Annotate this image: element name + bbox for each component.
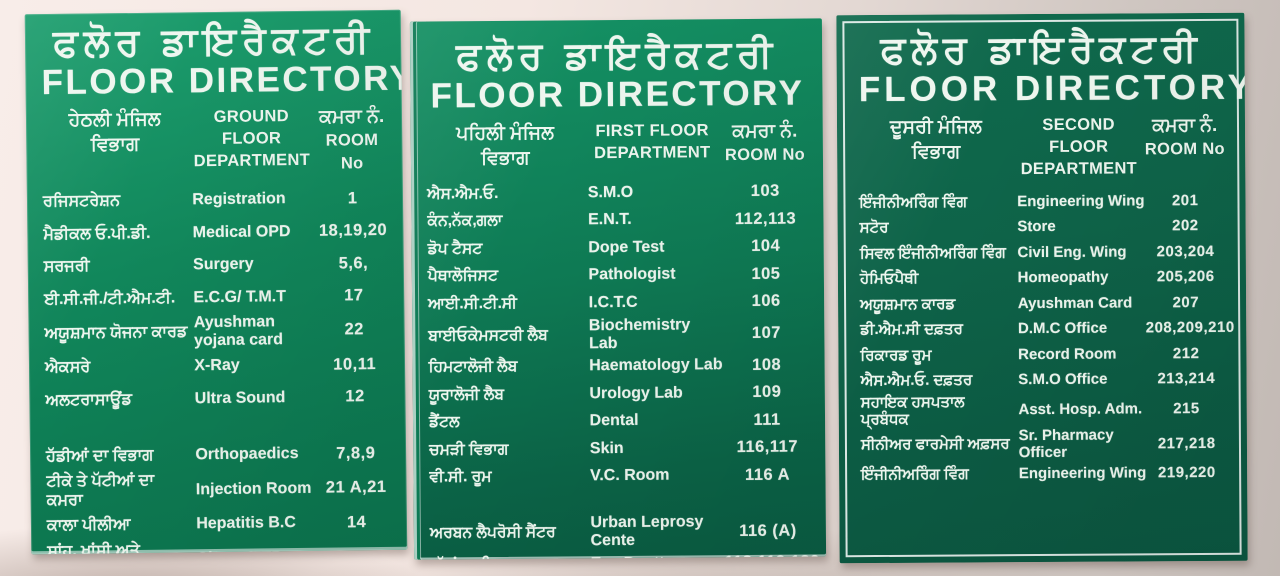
directory-row: ਐਕਸਰੇX-Ray10,11 [45, 348, 391, 385]
directory-rows: ਐਸ.ਐਮ.ਓ.S.M.O103ਕੰਨ,ਨੱਕ,ਗਲਾE.N.T.112,113… [427, 178, 812, 560]
row-room: 215 [1146, 400, 1227, 417]
row-department: D.M.C Office [1014, 320, 1146, 338]
row-punjabi: ਅਯੂਸ਼ਮਾਨ ਕਾਰਡ [860, 295, 1014, 313]
row-room: 116 A [724, 465, 812, 485]
directory-row: ਅੱਖਾਂ ਦਾ ਵਿਭਾਗEye Deptt118,119,120 [430, 549, 812, 560]
row-department: Hepatitis B.C [192, 514, 320, 534]
row-room: 1 [316, 189, 389, 209]
room-label-english: ROOM No [1145, 138, 1226, 161]
row-department: Store [1013, 218, 1145, 236]
row-department: Surgery [189, 255, 317, 275]
row-department: Sr. Pharmacy Officer [1015, 426, 1147, 461]
row-punjabi: ਸਰਜਰੀ [44, 256, 190, 276]
row-department: Pathologist [584, 265, 722, 284]
directory-row: ਹਿਮਟਾਲੋਜੀ ਲੈਬHaematology Lab108 [429, 351, 811, 381]
row-room: 104 [722, 237, 810, 257]
department-label-english: DEPARTMENT [188, 149, 316, 173]
row-punjabi: ਅੱਖਾਂ ਦਾ ਵਿਭਾਗ [430, 555, 587, 559]
room-label-punjabi: ਕਮਰਾ ਨੰ. [1144, 113, 1225, 139]
room-label-punjabi: ਕਮਰਾ ਨੰ. [315, 104, 388, 131]
row-room: 5,6, [317, 254, 390, 274]
row-room: 111 [723, 410, 811, 430]
directory-row: ਹੋਮਿਓਪੈਥੀHomeopathy205,206 [860, 264, 1226, 292]
row-punjabi: ਐਸ.ਐਮ.ਓ. ਦਫ਼ਤਰ [861, 371, 1015, 389]
row-punjabi: ਪੈਥਾਲੋਜਿਸਟ [428, 267, 585, 286]
row-department: V.C. Room [586, 466, 724, 485]
row-room: 21 A,21 [320, 478, 393, 498]
header-department-column: ਹੇਠਲੀ ਮੰਜਿਲ ਵਿਭਾਗ [42, 106, 188, 178]
directory-row: ਸਿਵਲ ਇੰਜੀਨੀਅਰਿੰਗ ਵਿੰਗCivil Eng. Wing203,… [860, 238, 1226, 266]
row-department: Urology Lab [585, 384, 723, 403]
header-floor-column: GROUND FLOOR DEPARTMENT [187, 105, 316, 177]
board-title-punjabi: ਫਲੋਰ ਡਾਇਰੈਕਟਰੀ [41, 20, 387, 65]
row-department: Ayushman Card [1014, 294, 1146, 312]
row-punjabi: ਇੰਜੀਨੀਅਰਿੰਗ ਵਿੰਗ [861, 465, 1015, 483]
row-room: 201 [1145, 192, 1226, 209]
row-department: Orthopaedics [191, 445, 319, 465]
directory-row: ਆਈ.ਸੀ.ਟੀ.ਸੀI.C.T.C106 [428, 288, 810, 318]
header-room-column: ਕਮਰਾ ਨੰ. ROOM No [1144, 113, 1225, 180]
directory-row: ਕੰਨ,ਨੱਕ,ਗਲਾE.N.T.112,113 [427, 205, 809, 235]
directory-row: ਰਜਿਸਟਰੇਸ਼ਨRegistration1 [43, 182, 389, 219]
row-room: 7,8,9 [319, 444, 392, 464]
department-label-english: DEPARTMENT [1013, 158, 1145, 181]
row-punjabi: ਆਈ.ਸੀ.ਟੀ.ਸੀ [428, 294, 585, 313]
row-punjabi: ਈ.ਸੀ.ਜੀ./ਟੀ.ਐਮ.ਟੀ. [44, 289, 190, 309]
board-title-english: FLOOR DIRECTORY [41, 61, 387, 102]
floor-label-punjabi: ਪਹਿਲੀ ਮੰਜਿਲ [427, 120, 584, 147]
row-punjabi: ਵੀ.ਸੀ. ਰੂਮ [429, 468, 586, 487]
row-punjabi: ਮੈਡੀਕਲ ਓ.ਪੀ.ਡੀ. [43, 224, 189, 244]
column-headers: ਹੇਠਲੀ ਮੰਜਿਲ ਵਿਭਾਗ GROUND FLOOR DEPARTMEN… [42, 104, 389, 178]
directory-rows: ਇੰਜੀਨੀਅਰਿੰਗ ਵਿੰਗEngineering Wing201ਸਟੋਰS… [859, 187, 1227, 487]
directory-rows: ਰਜਿਸਟਰੇਸ਼ਨRegistration1ਮੈਡੀਕਲ ਓ.ਪੀ.ਡੀ.Me… [43, 182, 394, 554]
row-department: E.N.T. [584, 210, 722, 229]
header-department-column: ਪਹਿਲੀ ਮੰਜਿਲ ਵਿਭਾਗ [427, 120, 584, 173]
directory-row: ਡੋਪ ਟੈਸਟDope Test104 [428, 233, 810, 263]
directory-row: ਪੈਥਾਲੋਜਿਸਟPathologist105 [428, 260, 810, 290]
header-floor-column: SECOND FLOOR DEPARTMENT [1013, 113, 1145, 181]
room-label-english: ROOM No [721, 144, 809, 167]
directory-row: ਅਯੂਸ਼ਮਾਨ ਕਾਰਡAyushman Card207 [860, 289, 1226, 317]
row-department: Asst. Hosp. Adm. [1014, 401, 1146, 419]
floor-label-punjabi: ਹੇਠਲੀ ਮੰਜਿਲ [42, 106, 188, 133]
column-headers: ਪਹਿਲੀ ਮੰਜਿਲ ਵਿਭਾਗ FIRST FLOOR DEPARTMENT… [427, 118, 809, 172]
row-punjabi: ਅਲਟਰਾਸਾਊਂਡ [45, 390, 191, 410]
header-room-column: ਕਮਰਾ ਨੰ. ROOM No [721, 118, 809, 170]
header-room-column: ਕਮਰਾ ਨੰ. ROOM No [315, 104, 389, 175]
row-punjabi: ਰਜਿਸਟਰੇਸ਼ਨ [43, 191, 189, 211]
row-department: Civil Eng. Wing [1013, 243, 1145, 261]
row-punjabi: ਸਹਾਇਕ ਹਸਪਤਾਲ ਪ੍ਰਬੰਧਕ [861, 393, 1015, 428]
directory-row: ਮੈਡੀਕਲ ਓ.ਪੀ.ਡੀ.Medical OPD18,19,20 [43, 214, 389, 251]
floor-label-punjabi: ਦੂਸਰੀ ਮੰਜਿਲ [859, 114, 1013, 141]
row-room: 219,220 [1147, 464, 1228, 481]
row-room: 105 [722, 264, 810, 284]
row-department: Eye Deptt [587, 554, 725, 560]
row-room: 14 [320, 513, 393, 533]
row-room: 17 [317, 286, 390, 306]
row-punjabi: ਹੋਮਿਓਪੈਥੀ [860, 269, 1014, 287]
directory-row: ਐਸ.ਐਮ.ਓ.S.M.O103 [427, 178, 809, 208]
row-department: Homeopathy [1014, 269, 1146, 287]
row-punjabi: ਅਯੂਸ਼ਮਾਨ ਯੋਜਨਾ ਕਾਰਡ [45, 323, 191, 343]
row-room: 10,11 [318, 355, 391, 375]
row-room: 22 [318, 320, 391, 340]
room-label-english: ROOM No [315, 129, 388, 174]
directory-row: ਅਰਬਨ ਲੈਪਰੋਸੀ ਸੈਂਟਰUrban Leprosy Cente116… [430, 513, 812, 552]
row-punjabi: ਸਾਂਹ, ਖਾਂਸੀ ਅਤੇ ਟੀ.ਬੀ. ਦੇ ਰੋਗ [47, 541, 193, 554]
row-punjabi: ਟੀਕੇ ਤੇ ਪੱਟੀਆਂ ਦਾ ਕਮਰਾ [46, 472, 192, 511]
row-punjabi: ਸਿਵਲ ਇੰਜੀਨੀਅਰਿੰਗ ਵਿੰਗ [860, 244, 1014, 262]
board-title-english: FLOOR DIRECTORY [859, 70, 1225, 109]
row-punjabi: ਹੱਡੀਆਂ ਦਾ ਵਿਭਾਗ [46, 446, 192, 466]
directory-row: ਵੀ.ਸੀ. ਰੂਮV.C. Room116 A [429, 461, 811, 491]
directory-row: ਕਾਲਾ ਪੀਲੀਆHepatitis B.C14 [47, 506, 393, 543]
row-room: 112,113 [722, 209, 810, 229]
row-room: 116,117 [723, 438, 811, 458]
row-department: I.C.T.C [585, 293, 723, 312]
row-department: Haematology Lab [585, 356, 723, 375]
row-department: X-Ray [190, 356, 318, 376]
directory-row: ਸਰਜਰੀSurgery5,6, [44, 247, 390, 284]
directory-row: ਅਲਟਰਾਸਾਊਂਡUltra Sound12 [45, 380, 391, 417]
row-department: Dope Test [584, 238, 722, 257]
row-punjabi: ਡੀ.ਐਮ.ਸੀ ਦਫ਼ਤਰ [860, 320, 1014, 338]
hospital-wall: ਫਲੋਰ ਡਾਇਰੈਕਟਰੀ FLOOR DIRECTORY ਹੇਠਲੀ ਮੰਜ… [0, 0, 1280, 576]
row-room: 207 [1146, 294, 1227, 311]
row-punjabi: ਹਿਮਟਾਲੋਜੀ ਲੈਬ [429, 358, 586, 377]
department-label-english: DEPARTMENT [583, 141, 721, 164]
board-title-english: FLOOR DIRECTORY [426, 76, 808, 116]
department-label-punjabi: ਵਿਭਾਗ [427, 146, 584, 173]
directory-row: ਡੈਂਟਲDental111 [429, 406, 811, 436]
row-department: Record Room [1014, 345, 1146, 363]
directory-row: ਐਸ.ਐਮ.ਓ. ਦਫ਼ਤਰS.M.O Office213,214 [860, 366, 1226, 394]
floor-label-english: GROUND FLOOR [187, 105, 316, 151]
board-first-floor: ਫਲੋਰ ਡਾਇਰੈਕਟਰੀ FLOOR DIRECTORY ਪਹਿਲੀ ਮੰਜ… [410, 18, 826, 559]
row-room: 118,119,120 [724, 553, 812, 560]
row-room: 106 [722, 292, 810, 312]
row-room: 212 [1146, 345, 1227, 362]
row-punjabi: ਰਿਕਾਰਡ ਰੂਮ [860, 346, 1014, 364]
directory-row: ਬਾਈਓਕੇਮਸਟਰੀ ਲੈਬBiochemistry Lab107 [428, 315, 810, 354]
row-department: Medical OPD [189, 222, 317, 242]
header-floor-column: FIRST FLOOR DEPARTMENT [583, 119, 721, 171]
directory-row: ਇੰਜੀਨੀਅਰਿੰਗ ਵਿੰਗEngineering Wing201 [859, 187, 1225, 215]
row-department: Registration [188, 190, 316, 210]
row-room: 18,19,20 [317, 221, 390, 241]
row-department: Biochemistry Lab [585, 316, 723, 353]
row-department: E.C.G/ T.M.T [189, 287, 317, 307]
directory-row: ਈ.ਸੀ.ਜੀ./ਟੀ.ਐਮ.ਟੀ.E.C.G/ T.M.T17 [44, 279, 390, 316]
row-department: Engineering Wing [1015, 465, 1147, 483]
row-punjabi: ਡੋਪ ਟੈਸਟ [428, 239, 585, 258]
row-punjabi: ਬਾਈਓਕੇਮਸਟਰੀ ਲੈਬ [428, 326, 585, 345]
row-punjabi: ਇੰਜੀਨੀਅਰਿੰਗ ਵਿੰਗ [859, 193, 1013, 211]
row-room: 108 [723, 355, 811, 375]
row-department: Dental [586, 411, 724, 430]
row-punjabi: ਡੈਂਟਲ [429, 413, 586, 432]
row-punjabi: ਕੰਨ,ਨੱਕ,ਗਲਾ [427, 212, 584, 231]
directory-row: ਚਮੜੀ ਵਿਭਾਗSkin116,117 [429, 434, 811, 464]
department-label-punjabi: ਵਿਭਾਗ [42, 132, 188, 159]
row-department: Urban Leprosy Cente [586, 513, 724, 550]
row-punjabi: ਐਕਸਰੇ [45, 357, 191, 377]
row-room: 217,218 [1146, 434, 1227, 451]
directory-row: ਹੱਡੀਆਂ ਦਾ ਵਿਭਾਗOrthopaedics7,8,9 [46, 437, 392, 474]
directory-row: ਇੰਜੀਨੀਅਰਿੰਗ ਵਿੰਗEngineering Wing219,220 [861, 460, 1227, 488]
row-department: Chest & TB [193, 549, 321, 554]
directory-row: ਸਹਾਇਕ ਹਸਪਤਾਲ ਪ੍ਰਬੰਧਕAsst. Hosp. Adm.215 [861, 391, 1227, 428]
board-title-punjabi: ਫਲੋਰ ਡਾਇਰੈਕਟਰੀ [426, 34, 808, 78]
directory-row: ਰਿਕਾਰਡ ਰੂਮRecord Room212 [860, 340, 1226, 368]
row-room: 213,214 [1146, 370, 1227, 387]
row-punjabi: ਸਟੋਰ [860, 218, 1014, 236]
directory-row: ਯੂਰਾਲੋਜੀ ਲੈਬUrology Lab109 [429, 379, 811, 409]
row-room: 208,209,210 [1146, 319, 1227, 336]
department-label-punjabi: ਵਿਭਾਗ [859, 140, 1013, 167]
row-room: 202 [1145, 217, 1226, 234]
row-department: S.M.O [584, 183, 722, 202]
directory-row: ਟੀਕੇ ਤੇ ਪੱਟੀਆਂ ਦਾ ਕਮਰਾInjection Room21 A… [46, 469, 392, 510]
room-label-punjabi: ਕਮਰਾ ਨੰ. [721, 118, 809, 144]
row-room: 203,204 [1145, 243, 1226, 260]
row-department: Ayushman yojana card [190, 313, 318, 351]
row-department: Ultra Sound [191, 388, 319, 408]
row-room: 109 [723, 383, 811, 403]
row-punjabi: ਯੂਰਾਲੋਜੀ ਲੈਬ [429, 385, 586, 404]
board-title-punjabi: ਫਲੋਰ ਡਾਇਰੈਕਟਰੀ [858, 29, 1224, 72]
row-punjabi: ਅਰਬਨ ਲੈਪਰੋਸੀ ਸੈਂਟਰ [430, 523, 587, 542]
board-ground-floor: ਫਲੋਰ ਡਾਇਰੈਕਟਰੀ FLOOR DIRECTORY ਹੇਠਲੀ ਮੰਜ… [25, 10, 408, 555]
row-punjabi: ਕਾਲਾ ਪੀਲੀਆ [47, 516, 193, 536]
floor-label-english: SECOND FLOOR [1013, 113, 1145, 158]
column-headers: ਦੂਸਰੀ ਮੰਜਿਲ ਵਿਭਾਗ SECOND FLOOR DEPARTMEN… [859, 113, 1225, 182]
directory-row: ਸੀਨੀਅਰ ਫਾਰਮੇਸੀ ਅਫ਼ਸਰSr. Pharmacy Officer… [861, 426, 1227, 462]
directory-row: ਡੀ.ਐਮ.ਸੀ ਦਫ਼ਤਰD.M.C Office208,209,210 [860, 315, 1226, 343]
row-room: 107 [722, 324, 810, 344]
row-room: 205,206 [1145, 268, 1226, 285]
floor-label-english: FIRST FLOOR [583, 119, 721, 142]
board-second-floor: ਫਲੋਰ ਡਾਇਰੈਕਟਰੀ FLOOR DIRECTORY ਦੂਸਰੀ ਮੰਜ… [836, 13, 1247, 563]
row-room: 116 (A) [724, 521, 812, 541]
row-punjabi: ਐਸ.ਐਮ.ਓ. [427, 184, 584, 203]
row-punjabi: ਚਮੜੀ ਵਿਭਾਗ [429, 440, 586, 459]
row-department: S.M.O Office [1014, 371, 1146, 389]
row-department: Engineering Wing [1013, 192, 1145, 210]
row-room: 12 [319, 387, 392, 407]
directory-row: ਅਯੂਸ਼ਮਾਨ ਯੋਜਨਾ ਕਾਰਡAyushman yojana card2… [44, 312, 390, 352]
row-department: Skin [586, 439, 724, 458]
directory-row: ਸਟੋਰStore202 [860, 213, 1226, 241]
header-department-column: ਦੂਸਰੀ ਮੰਜਿਲ ਵਿਭਾਗ [859, 114, 1013, 182]
row-punjabi: ਸੀਨੀਅਰ ਫਾਰਮੇਸੀ ਅਫ਼ਸਰ [861, 436, 1015, 454]
row-room: 103 [721, 182, 809, 202]
row-department: Injection Room [192, 480, 320, 500]
